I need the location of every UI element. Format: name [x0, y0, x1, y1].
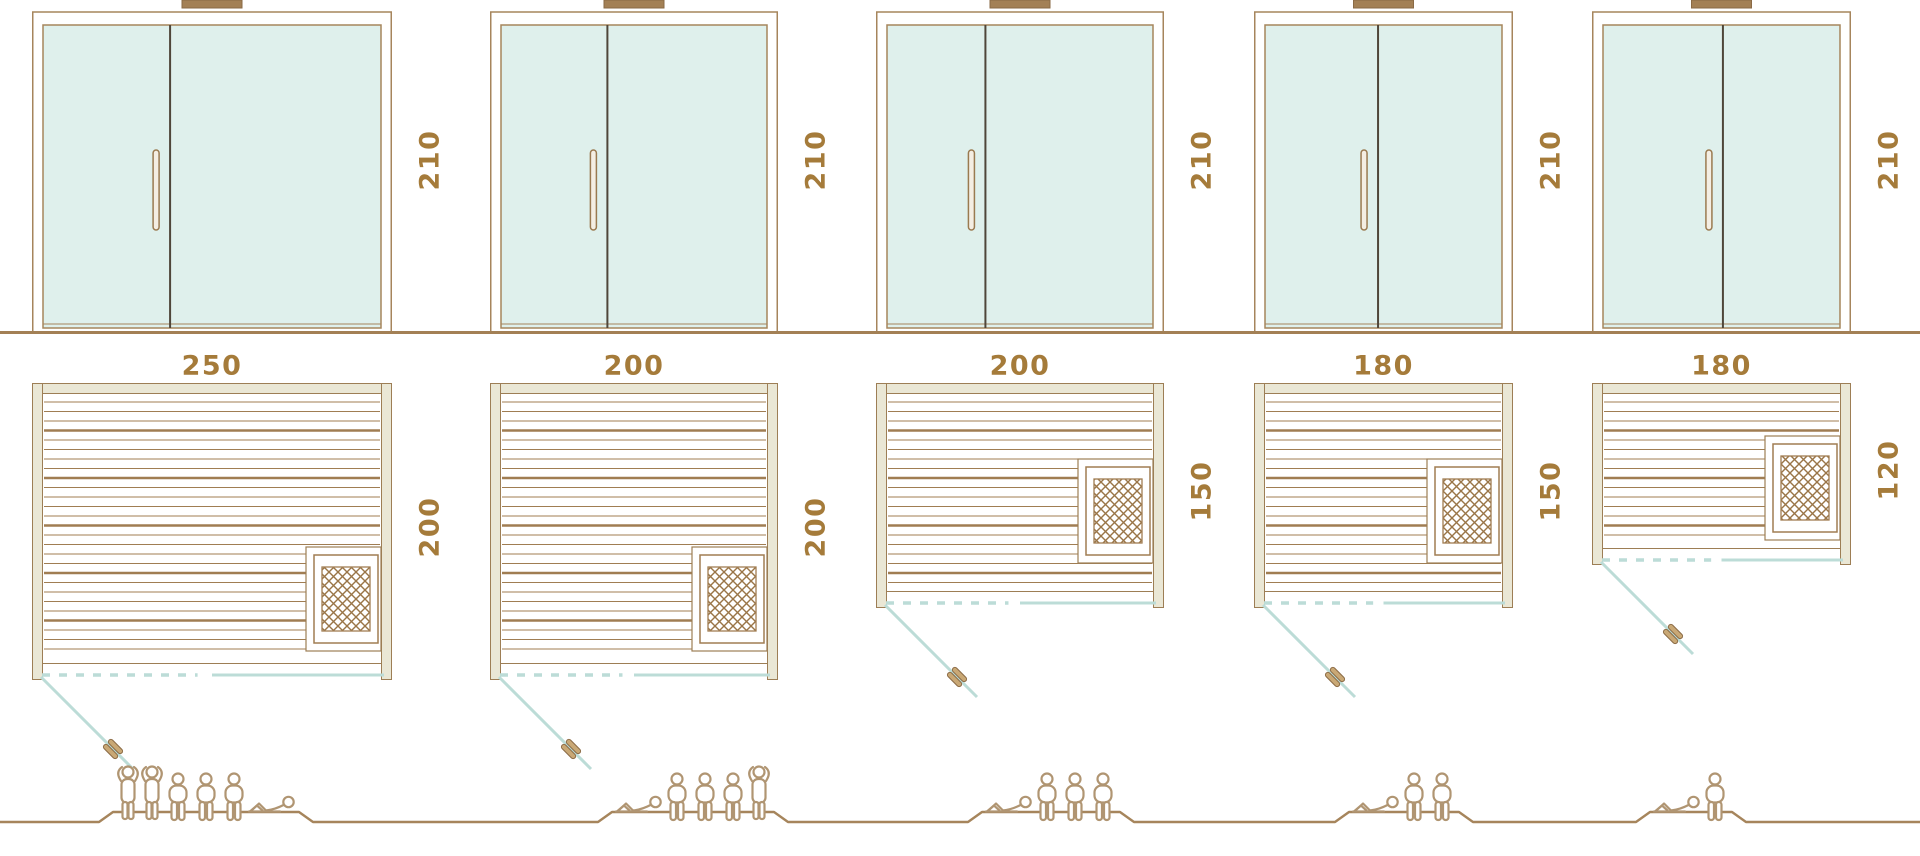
bench-terrain-line — [0, 812, 1920, 822]
heater — [1078, 459, 1153, 563]
ground-line — [1222, 331, 1598, 334]
door-glass-panels — [1603, 25, 1840, 328]
heater — [692, 547, 767, 651]
plan-depth-label: 120 — [1874, 439, 1905, 500]
door-swing-line — [1263, 605, 1355, 697]
heater — [1765, 436, 1840, 540]
door-height-label: 210 — [801, 130, 832, 191]
door-height-label: 210 — [1874, 130, 1905, 191]
door-elevation — [876, 0, 1164, 334]
door-handle — [590, 150, 596, 230]
ground-line — [1560, 331, 1920, 334]
heater-grille — [1443, 479, 1491, 543]
heater — [306, 547, 381, 651]
door-roof-vent — [182, 0, 242, 8]
plan-depth-label: 150 — [1536, 461, 1567, 522]
floor-plan — [32, 383, 392, 781]
sitting-person-icon — [669, 774, 686, 821]
door-glass-panels — [43, 25, 381, 328]
sitting-person-icon — [198, 774, 215, 821]
door-glass-panels — [1265, 25, 1502, 328]
plan-width-label: 200 — [604, 351, 665, 382]
plan-width-label: 180 — [1691, 351, 1752, 382]
lying-person-icon — [1353, 797, 1398, 812]
plan-width-label: 250 — [182, 351, 243, 382]
ground-line — [0, 331, 477, 334]
heater — [1427, 459, 1502, 563]
lying-person-icon — [616, 797, 661, 812]
door-handle — [968, 150, 974, 230]
sitting-person-icon — [1039, 774, 1056, 821]
floor-plan — [490, 383, 778, 781]
door-elevation — [1592, 0, 1851, 334]
sauna-size-comparison-diagram: 210250 200 210200 — [0, 0, 1920, 856]
floor-plan — [1592, 383, 1851, 666]
capacity-figures-strip — [0, 770, 1920, 856]
plan-depth-label: 200 — [801, 497, 832, 558]
ground-line — [458, 331, 863, 334]
lying-person-icon — [249, 797, 294, 812]
sitting-person-icon — [1095, 774, 1112, 821]
ground-line — [844, 331, 1249, 334]
sitting-person-icon — [1067, 774, 1084, 821]
door-swing-line — [1601, 562, 1693, 654]
door-handle — [1361, 150, 1367, 230]
floor-plan — [1254, 383, 1513, 709]
door-handle — [1706, 150, 1712, 230]
door-handle — [153, 150, 159, 230]
door-swing-line — [885, 605, 977, 697]
door-glass-panels — [887, 25, 1153, 328]
plan-depth-label: 150 — [1187, 461, 1218, 522]
door-swing-line — [499, 677, 591, 769]
plan-width-label: 200 — [990, 351, 1051, 382]
sitting-person-icon — [1406, 774, 1423, 821]
sitting-person-icon — [1434, 774, 1451, 821]
heater-grille — [708, 567, 756, 631]
sitting-person-icon — [226, 774, 243, 821]
door-roof-vent — [1692, 0, 1752, 8]
door-elevation — [32, 0, 392, 334]
plan-width-label: 180 — [1353, 351, 1414, 382]
heater-grille — [322, 567, 370, 631]
sitting-person-icon — [1707, 774, 1724, 821]
door-height-label: 210 — [415, 130, 446, 191]
heater-grille — [1781, 456, 1829, 520]
lying-person-icon — [1654, 797, 1699, 812]
door-elevation — [490, 0, 778, 334]
floor-plan — [876, 383, 1164, 709]
door-roof-vent — [990, 0, 1050, 8]
door-swing-line — [41, 677, 133, 769]
sitting-person-icon — [170, 774, 187, 821]
door-height-label: 210 — [1187, 130, 1218, 191]
plan-depth-label: 200 — [415, 497, 446, 558]
sitting-person-icon — [725, 774, 742, 821]
heater-grille — [1094, 479, 1142, 543]
door-roof-vent — [1354, 0, 1414, 8]
door-elevation — [1254, 0, 1513, 334]
lying-person-icon — [986, 797, 1031, 812]
door-height-label: 210 — [1536, 130, 1567, 191]
sitting-person-icon — [697, 774, 714, 821]
door-glass-panels — [501, 25, 767, 328]
door-roof-vent — [604, 0, 664, 8]
